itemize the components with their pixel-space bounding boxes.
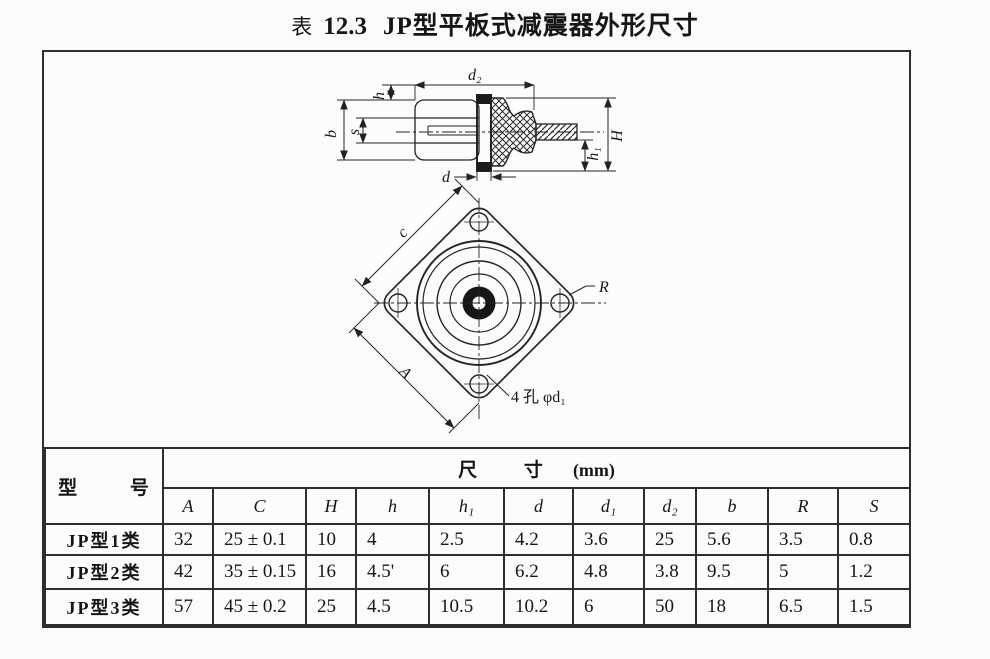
caption-table-word: 表 <box>291 15 313 39</box>
label-A: A <box>395 363 415 383</box>
col-header-d2: d₂ <box>644 488 696 524</box>
col-header-b: b <box>696 488 768 524</box>
cell-jp3-S: 1.5 <box>838 589 910 625</box>
plate-cap-bottom <box>477 162 491 171</box>
col-header-h1: h₁ <box>429 488 504 524</box>
col-header-A: A <box>163 488 213 524</box>
cell-jp2-d2: 3.8 <box>644 555 696 589</box>
row-model-jp1: JP型1类 <box>45 524 163 555</box>
cell-jp3-A: 57 <box>163 589 213 625</box>
row-model-jp3: JP型3类 <box>45 589 163 625</box>
col-header-d: d <box>504 488 573 524</box>
cell-jp3-R: 6.5 <box>768 589 838 625</box>
cell-jp1-A: 32 <box>163 524 213 555</box>
col-header-H: H <box>306 488 356 524</box>
cell-jp3-H: 25 <box>306 589 356 625</box>
label-d: d <box>442 169 451 186</box>
cell-jp2-H: 16 <box>306 555 356 589</box>
table-row-jp1: JP型1类 32 25 ± 0.1 10 4 2.5 4.2 3.6 25 5.… <box>45 524 910 555</box>
cell-jp3-C: 45 ± 0.2 <box>213 589 306 625</box>
cell-jp1-h1: 2.5 <box>429 524 504 555</box>
label-H: H <box>609 129 626 143</box>
col-header-R: R <box>768 488 838 524</box>
ext-line <box>355 279 379 303</box>
label-d2: d₂ <box>468 67 482 84</box>
cell-jp3-d1: 6 <box>573 589 644 625</box>
col-header-h: h <box>356 488 429 524</box>
table-caption: 表12.3JP型平板式减震器外形尺寸 <box>0 6 990 42</box>
technical-drawing: d₂ h b s H h₁ d c A R 4 孔 φd₁ <box>44 52 909 443</box>
table-frame: d₂ h b s H h₁ d c A R 4 孔 φd₁ 型 号 尺 寸(mm… <box>42 50 911 628</box>
label-b: b <box>323 130 340 138</box>
cell-jp2-A: 42 <box>163 555 213 589</box>
cell-jp1-d: 4.2 <box>504 524 573 555</box>
cell-jp3-d2: 50 <box>644 589 696 625</box>
col-header-C: C <box>213 488 306 524</box>
size-header-label: 尺 寸 <box>458 460 543 481</box>
plate-cap-top <box>477 95 491 104</box>
ext-line <box>349 303 379 333</box>
cell-jp2-b: 9.5 <box>696 555 768 589</box>
cell-jp1-d2: 25 <box>644 524 696 555</box>
col-header-S: S <box>838 488 910 524</box>
dimension-table: 型 号 尺 寸(mm) A C H h h₁ d d₁ d₂ b R S J <box>44 447 911 626</box>
cell-jp2-C: 35 ± 0.15 <box>213 555 306 589</box>
cell-jp3-d: 10.2 <box>504 589 573 625</box>
cell-jp1-C: 25 ± 0.1 <box>213 524 306 555</box>
caption-table-title: JP型平板式减震器外形尺寸 <box>383 13 699 40</box>
cell-jp3-h: 4.5 <box>356 589 429 625</box>
ext-line <box>449 403 479 433</box>
cell-jp3-h1: 10.5 <box>429 589 504 625</box>
label-c: c <box>394 224 411 241</box>
model-column-header: 型 号 <box>45 448 163 524</box>
cell-jp2-d: 6.2 <box>504 555 573 589</box>
caption-table-number: 12.3 <box>323 13 367 40</box>
cell-jp2-h1: 6 <box>429 555 504 589</box>
cell-jp1-b: 5.6 <box>696 524 768 555</box>
label-hole-note: 4 孔 φd₁ <box>511 388 566 406</box>
table-row-jp3: JP型3类 57 45 ± 0.2 25 4.5 10.5 10.2 6 50 … <box>45 589 910 625</box>
label-h: h <box>371 92 388 100</box>
label-h1: h₁ <box>585 147 602 161</box>
ext-line <box>455 179 479 203</box>
cell-jp2-h: 4.5' <box>356 555 429 589</box>
label-s: s <box>346 129 363 135</box>
cell-jp1-h: 4 <box>356 524 429 555</box>
cell-jp1-R: 3.5 <box>768 524 838 555</box>
plan-view <box>349 179 606 433</box>
leader-line-R <box>569 286 595 295</box>
cell-jp3-b: 18 <box>696 589 768 625</box>
cell-jp1-H: 10 <box>306 524 356 555</box>
table-row-jp2: JP型2类 42 35 ± 0.15 16 4.5' 6 6.2 4.8 3.8… <box>45 555 910 589</box>
hub-outline <box>415 100 479 160</box>
row-model-jp2: JP型2类 <box>45 555 163 589</box>
cell-jp1-d1: 3.6 <box>573 524 644 555</box>
cell-jp1-S: 0.8 <box>838 524 910 555</box>
label-R: R <box>598 279 609 296</box>
col-header-d1: d₁ <box>573 488 644 524</box>
cell-jp2-S: 1.2 <box>838 555 910 589</box>
cell-jp2-R: 5 <box>768 555 838 589</box>
cell-jp2-d1: 4.8 <box>573 555 644 589</box>
size-header: 尺 寸(mm) <box>163 448 910 488</box>
size-header-unit: (mm) <box>573 460 615 480</box>
